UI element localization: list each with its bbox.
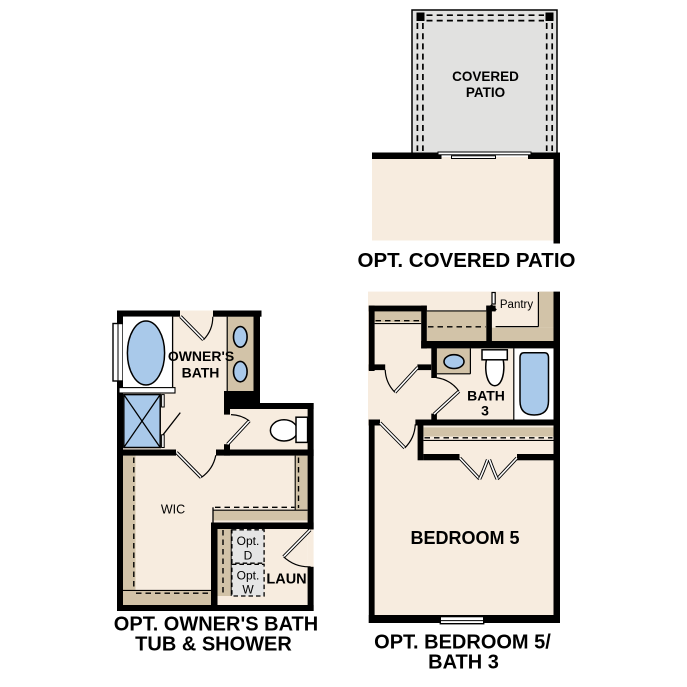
svg-text:Pantry: Pantry [500,299,533,311]
svg-text:OPT. BEDROOM 5/: OPT. BEDROOM 5/ [374,632,551,654]
svg-text:PATIO: PATIO [466,85,505,100]
svg-text:3: 3 [481,403,489,419]
svg-text:Opt.: Opt. [237,569,260,583]
svg-text:TUB & SHOWER: TUB & SHOWER [135,634,292,656]
svg-text:OWNER'S: OWNER'S [168,348,234,364]
svg-text:D: D [244,549,253,563]
svg-text:WIC: WIC [161,503,185,517]
svg-text:OPT. OWNER'S BATH: OPT. OWNER'S BATH [114,614,318,636]
svg-text:W: W [242,583,254,597]
svg-text:Opt.: Opt. [237,534,260,548]
svg-text:OPT. COVERED PATIO: OPT. COVERED PATIO [358,249,576,272]
svg-text:LAUN: LAUN [266,572,306,588]
svg-text:BATH: BATH [467,388,505,404]
svg-text:BEDROOM 5: BEDROOM 5 [410,528,519,548]
svg-text:BATH 3: BATH 3 [428,652,499,674]
svg-text:BATH: BATH [182,365,220,381]
svg-text:COVERED: COVERED [452,69,519,84]
